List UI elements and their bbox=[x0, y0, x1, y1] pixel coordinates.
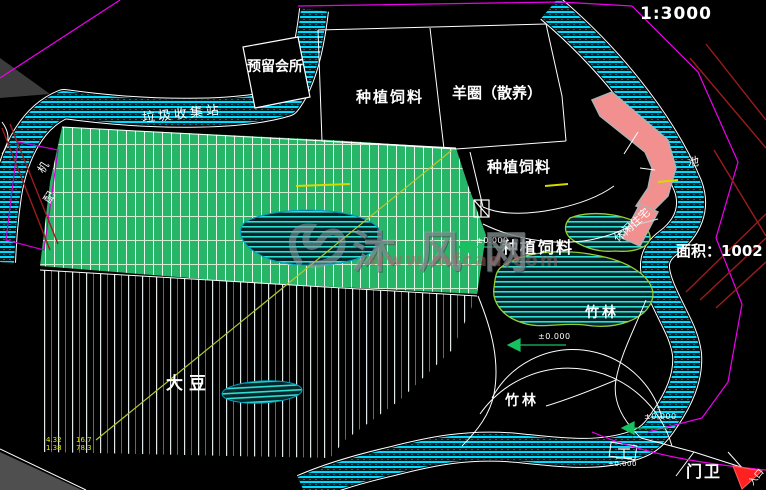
yellow-dim-b: 16.7 78.3 bbox=[76, 436, 92, 453]
label-bamboo-upper: 竹林 bbox=[585, 306, 619, 320]
yellow-dim-b1: 16.7 bbox=[76, 436, 92, 444]
cad-site-plan: 1:3000 预留会所 垃圾收集站 种植饲料 羊圈（散养） 种植饲料 种植饲料 … bbox=[0, 0, 766, 490]
yellow-dim-a1: 4.32 bbox=[46, 436, 62, 444]
label-feed-mid: 种植饲料 bbox=[487, 160, 551, 175]
label-soybean: 大豆 bbox=[166, 376, 212, 393]
label-pond: 池 bbox=[688, 156, 699, 167]
elevation-label-3: ±0.000 bbox=[644, 412, 677, 421]
terrain-topleft bbox=[0, 58, 50, 98]
yellow-dim-b2: 78.3 bbox=[76, 444, 92, 452]
label-reserved-clubhouse: 预留会所 bbox=[247, 60, 303, 74]
label-bamboo-lower: 竹林 bbox=[505, 394, 539, 408]
watermark-url: www.mfcad.com bbox=[368, 250, 561, 271]
label-feed-top: 种植饲料 bbox=[356, 90, 424, 105]
yellow-dim-a: 4.32 1.38 bbox=[46, 436, 62, 453]
label-gatehouse: 门卫 bbox=[686, 464, 722, 480]
yellow-dim-a2: 1.38 bbox=[46, 444, 62, 452]
soybean-field bbox=[40, 270, 477, 458]
label-sheep-pen: 羊圈（散养） bbox=[452, 86, 542, 101]
elevation-label-4: ±0.000 bbox=[608, 460, 637, 468]
scale-label: 1:3000 bbox=[640, 6, 712, 23]
elevation-label-2: ±0.000 bbox=[538, 332, 571, 341]
terrain-bottomleft bbox=[0, 452, 82, 490]
area-note: 面积：1002 bbox=[676, 244, 763, 259]
